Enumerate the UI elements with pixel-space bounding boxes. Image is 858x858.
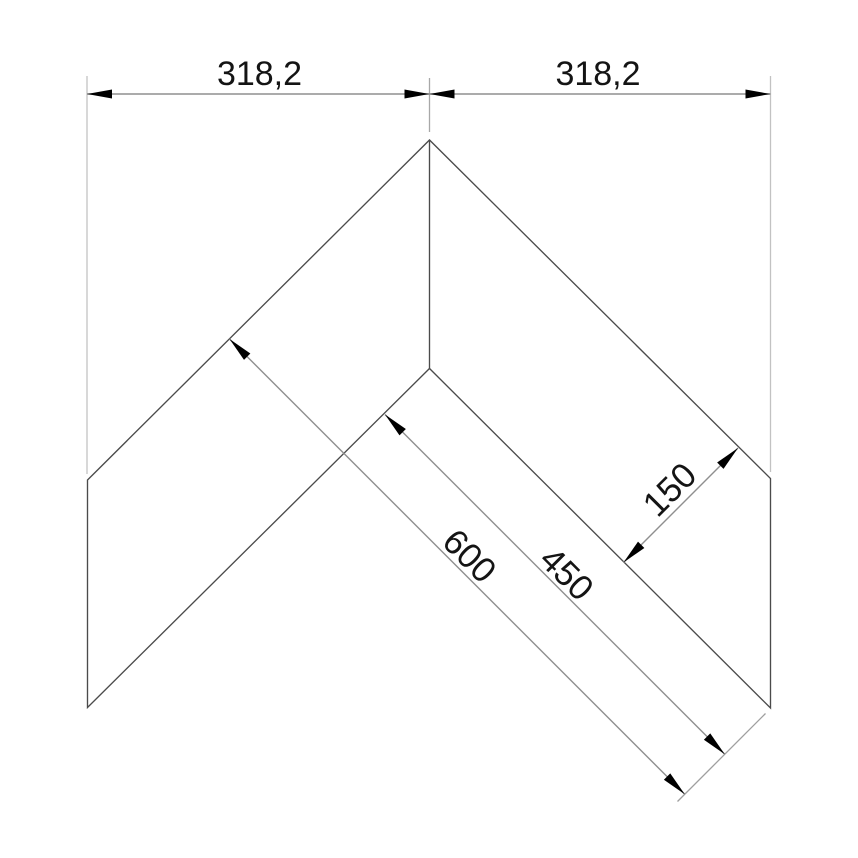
svg-text:318,2: 318,2 bbox=[555, 55, 640, 93]
svg-text:318,2: 318,2 bbox=[217, 55, 302, 93]
